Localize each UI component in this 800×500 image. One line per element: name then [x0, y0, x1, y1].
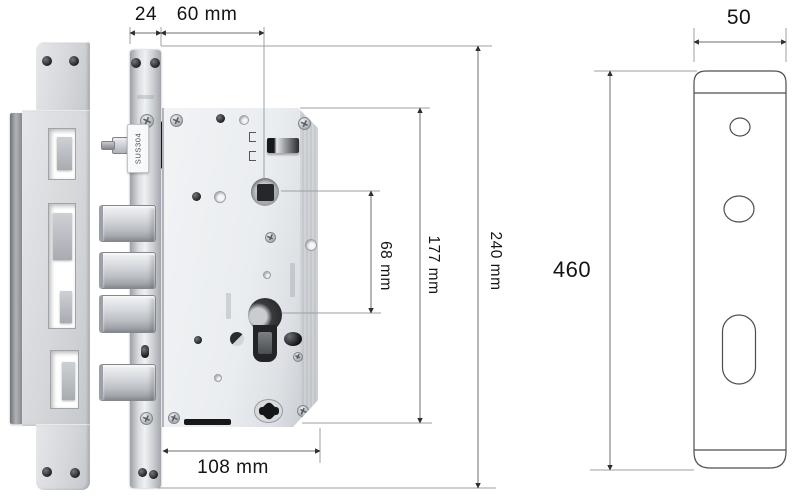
dimension-lines [130, 33, 786, 488]
back-panel-drawing [694, 71, 786, 468]
back-panel-outline [694, 71, 786, 468]
extension-lines [130, 27, 786, 488]
dimension-overlay [0, 0, 800, 500]
lock-dimension-diagram: SUS304 [0, 0, 800, 500]
